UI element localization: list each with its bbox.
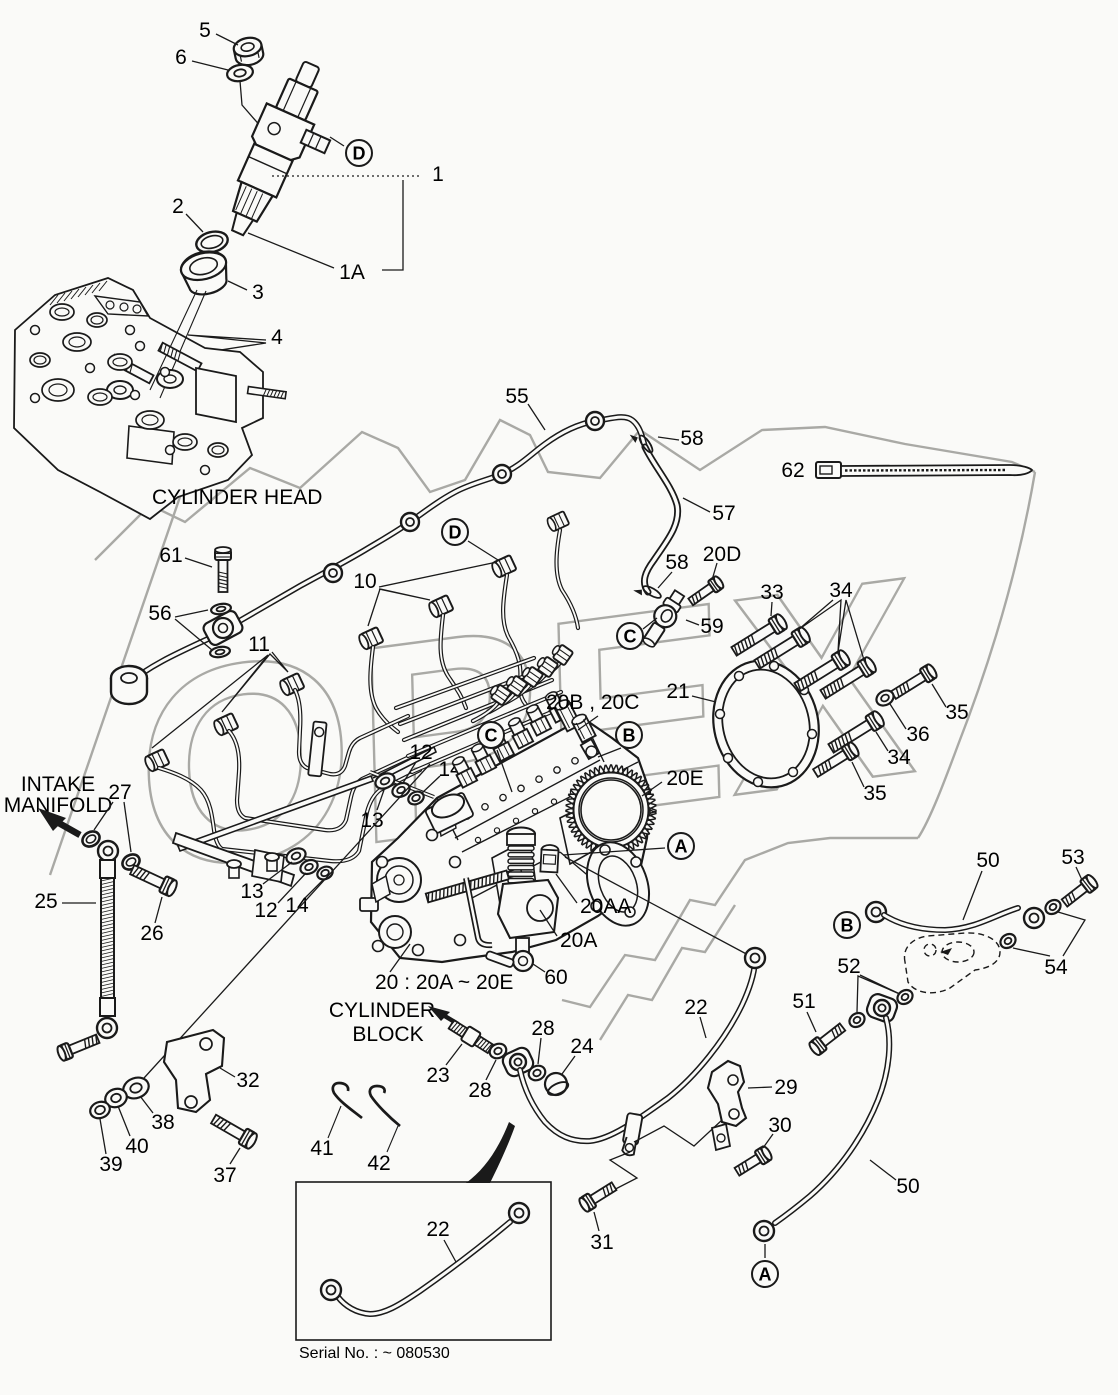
svg-text:24: 24 <box>570 1035 594 1058</box>
svg-text:D: D <box>353 144 366 164</box>
svg-text:28: 28 <box>468 1079 491 1102</box>
svg-text:MANIFOLD: MANIFOLD <box>4 794 113 817</box>
svg-text:10: 10 <box>353 570 376 593</box>
svg-text:1A: 1A <box>339 261 365 284</box>
svg-text:50: 50 <box>976 849 999 872</box>
svg-text:D: D <box>449 523 462 543</box>
svg-text:11: 11 <box>248 633 270 656</box>
svg-text:50: 50 <box>896 1175 919 1198</box>
svg-text:34: 34 <box>829 579 853 602</box>
svg-text:21: 21 <box>666 680 689 703</box>
svg-text:54: 54 <box>1044 956 1068 979</box>
svg-text:28: 28 <box>531 1017 554 1040</box>
svg-text:30: 30 <box>768 1114 791 1137</box>
svg-text:27: 27 <box>108 781 131 804</box>
svg-text:35: 35 <box>863 782 886 805</box>
svg-text:34: 34 <box>887 746 911 769</box>
svg-text:A: A <box>759 1265 772 1285</box>
svg-text:CYLINDER HEAD: CYLINDER HEAD <box>152 486 322 509</box>
svg-text:4: 4 <box>271 326 283 349</box>
svg-text:58: 58 <box>665 551 688 574</box>
svg-text:INTAKE: INTAKE <box>21 773 95 796</box>
svg-text:36: 36 <box>906 723 929 746</box>
svg-text:2: 2 <box>172 195 184 218</box>
svg-text:22: 22 <box>426 1218 449 1241</box>
svg-text:33: 33 <box>760 581 783 604</box>
svg-text:1: 1 <box>432 163 444 186</box>
svg-text:B: B <box>841 916 854 936</box>
svg-text:23: 23 <box>426 1064 449 1087</box>
svg-text:20A: 20A <box>560 929 597 952</box>
svg-text:20AA: 20AA <box>580 895 631 918</box>
svg-text:57: 57 <box>712 502 735 525</box>
svg-text:3: 3 <box>252 281 264 304</box>
svg-text:22: 22 <box>684 996 707 1019</box>
svg-text:20D: 20D <box>703 543 742 566</box>
svg-text:25: 25 <box>34 890 57 913</box>
svg-text:BLOCK: BLOCK <box>352 1023 423 1046</box>
svg-text:51: 51 <box>792 990 815 1013</box>
svg-text:CYLINDER: CYLINDER <box>329 999 435 1022</box>
svg-text:C: C <box>624 627 637 647</box>
svg-text:59: 59 <box>700 615 723 638</box>
svg-text:56: 56 <box>148 602 171 625</box>
svg-text:40: 40 <box>125 1135 148 1158</box>
svg-text:20E: 20E <box>666 767 703 790</box>
svg-text:29: 29 <box>774 1076 797 1099</box>
svg-text:32: 32 <box>236 1069 259 1092</box>
svg-text:A: A <box>675 837 688 857</box>
svg-text:20 : 20A ~ 20E: 20 : 20A ~ 20E <box>375 971 513 994</box>
svg-text:53: 53 <box>1061 846 1084 869</box>
svg-text:58: 58 <box>680 427 703 450</box>
svg-text:55: 55 <box>505 385 528 408</box>
svg-text:39: 39 <box>99 1153 122 1176</box>
svg-text:42: 42 <box>367 1152 390 1175</box>
svg-text:31: 31 <box>590 1231 613 1254</box>
svg-text:35: 35 <box>945 701 968 724</box>
svg-text:6: 6 <box>175 46 187 69</box>
svg-text:38: 38 <box>151 1111 174 1134</box>
svg-text:41: 41 <box>310 1137 333 1160</box>
svg-text:12: 12 <box>409 741 432 764</box>
svg-text:62: 62 <box>781 459 804 482</box>
svg-text:61: 61 <box>159 544 182 567</box>
svg-text:B: B <box>623 726 636 746</box>
svg-text:12: 12 <box>254 899 277 922</box>
svg-text:C: C <box>485 726 498 746</box>
svg-text:20B , 20C: 20B , 20C <box>546 691 639 714</box>
svg-text:60: 60 <box>544 966 567 989</box>
svg-text:37: 37 <box>213 1164 236 1187</box>
svg-text:52: 52 <box>837 955 860 978</box>
svg-text:26: 26 <box>140 922 163 945</box>
svg-text:Serial No. : ~ 080530: Serial No. : ~ 080530 <box>299 1345 450 1362</box>
svg-text:5: 5 <box>199 19 211 42</box>
